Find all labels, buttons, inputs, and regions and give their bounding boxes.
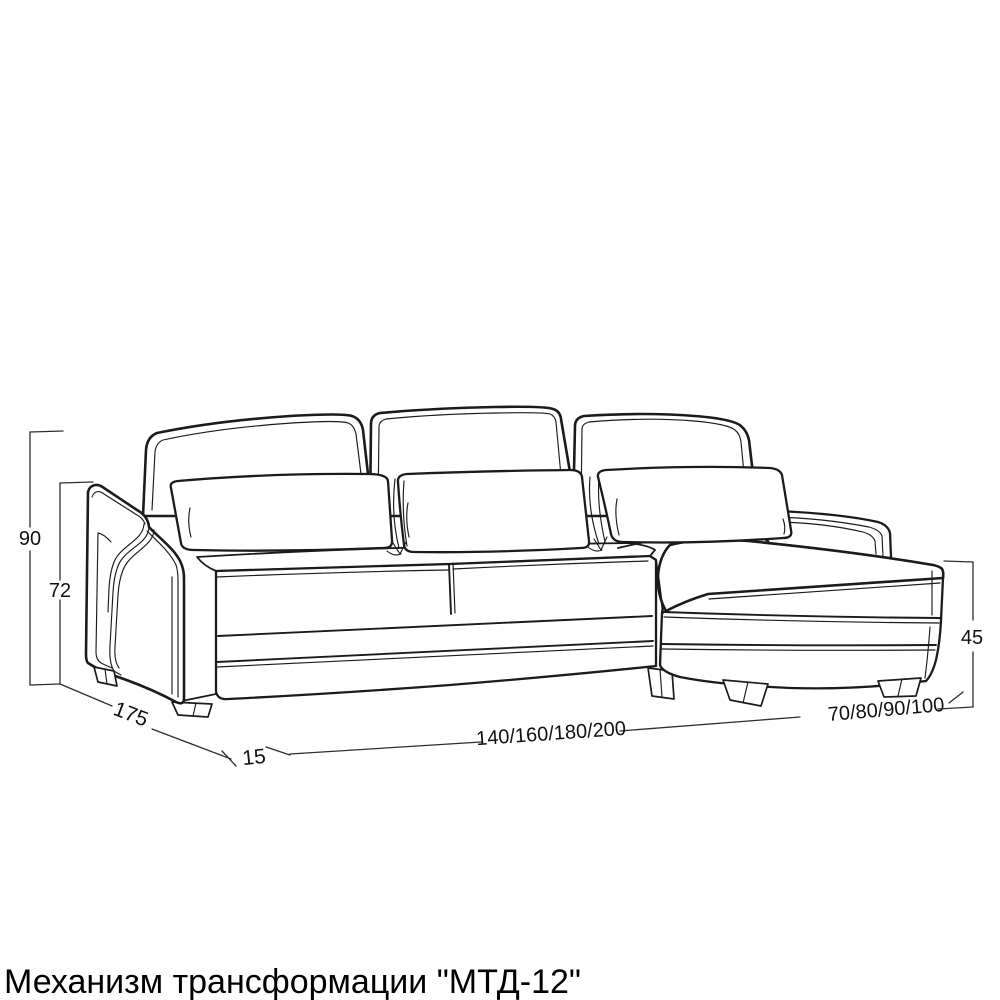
lumbar-pillows [171, 467, 792, 555]
sofa-technical-drawing: 90 72 175 15 140/160/180/200 70/80/90/10… [0, 0, 1000, 1000]
dimension-label-total-height: 90 [19, 528, 41, 550]
dimension-arm-offset: 15 [241, 745, 290, 770]
sofa-dimension-sheet: 90 72 175 15 140/160/180/200 70/80/90/10… [0, 0, 1000, 1000]
dimension-label-chaise-height: 45 [961, 627, 983, 649]
dimension-label-back-height: 72 [49, 580, 71, 602]
pillow-right [598, 467, 791, 543]
main-front-body [216, 556, 656, 699]
seat-and-base [172, 556, 663, 717]
dimension-label-seat-width: 140/160/180/200 [475, 718, 626, 750]
dimension-label-arm-offset: 15 [241, 745, 267, 770]
chaise [658, 540, 943, 706]
dimension-depth: 175 [60, 684, 236, 766]
pillow-middle [398, 470, 589, 552]
dimension-seat-width: 140/160/180/200 [290, 717, 800, 754]
pillow-left [171, 474, 392, 551]
dimension-chaise-height: 45 [938, 561, 983, 709]
dimension-label-depth: 175 [110, 697, 151, 731]
dimension-label-chaise-width: 70/80/90/100 [827, 694, 945, 726]
dimension-total-height: 90 [19, 431, 63, 685]
left-armrest [86, 485, 184, 703]
mechanism-caption: Механизм трансформации "МТД-12" [4, 963, 581, 1000]
front-left-leg [172, 702, 212, 717]
